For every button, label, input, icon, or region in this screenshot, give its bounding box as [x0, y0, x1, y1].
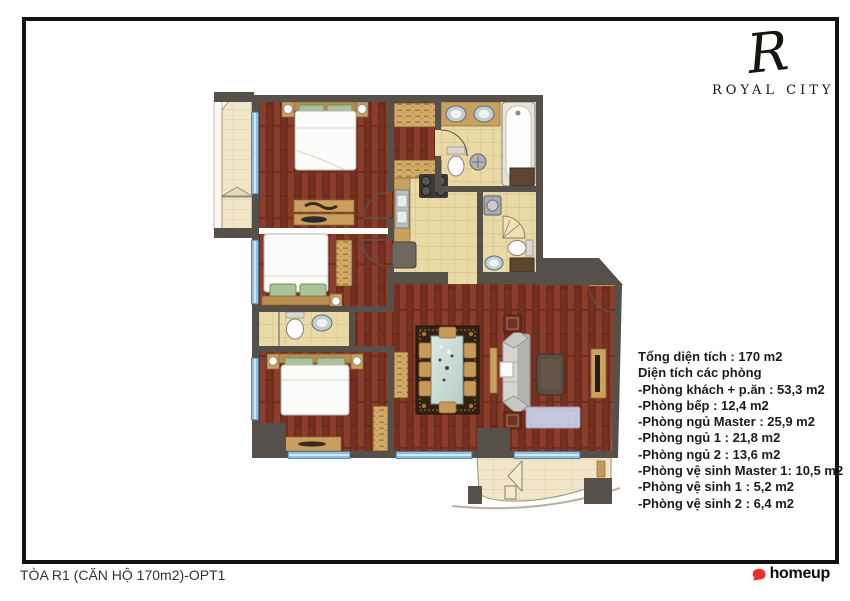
room-area-living: -Phòng khách + p.ăn : 53,3 m2: [638, 382, 843, 398]
royal-city-wordmark: ROYAL CITY: [712, 83, 824, 98]
room-areas-heading: Diện tích các phòng: [638, 365, 843, 381]
plan-title: TÒA R1 (CĂN HỘ 170m2)-OPT1: [20, 567, 225, 583]
area-summary: Tổng diện tích : 170 m2 Diện tích các ph…: [638, 349, 843, 512]
room-area-bath-2: -Phòng vệ sinh 2 : 6,4 m2: [638, 496, 843, 512]
room-area-master-bath: -Phòng vệ sinh Master 1: 10,5 m2: [638, 463, 843, 479]
room-area-bath-1: -Phòng vệ sinh 1 : 5,2 m2: [638, 479, 843, 495]
room-area-kitchen: -Phòng bếp : 12,4 m2: [638, 398, 843, 414]
homeup-icon: [751, 567, 767, 582]
balcony-bottom: [452, 455, 620, 508]
floor-plan-page: R ROYAL CITY Tổng diện tích : 170 m2 Diệ…: [0, 0, 850, 601]
homeup-logo: homeup: [751, 565, 830, 583]
room-area-bedroom-1: -Phòng ngủ 1 : 21,8 m2: [638, 430, 843, 446]
royal-city-monogram-r: R: [709, 20, 826, 85]
royal-city-logo: R ROYAL CITY: [712, 26, 824, 98]
total-area-line: Tổng diện tích : 170 m2: [638, 349, 843, 365]
room-area-bedroom-2: -Phòng ngủ 2 : 13,6 m2: [638, 447, 843, 463]
homeup-wordmark: homeup: [770, 565, 830, 583]
room-area-master-bedroom: -Phòng ngủ Master : 25,9 m2: [638, 414, 843, 430]
balcony-left: [214, 92, 254, 238]
